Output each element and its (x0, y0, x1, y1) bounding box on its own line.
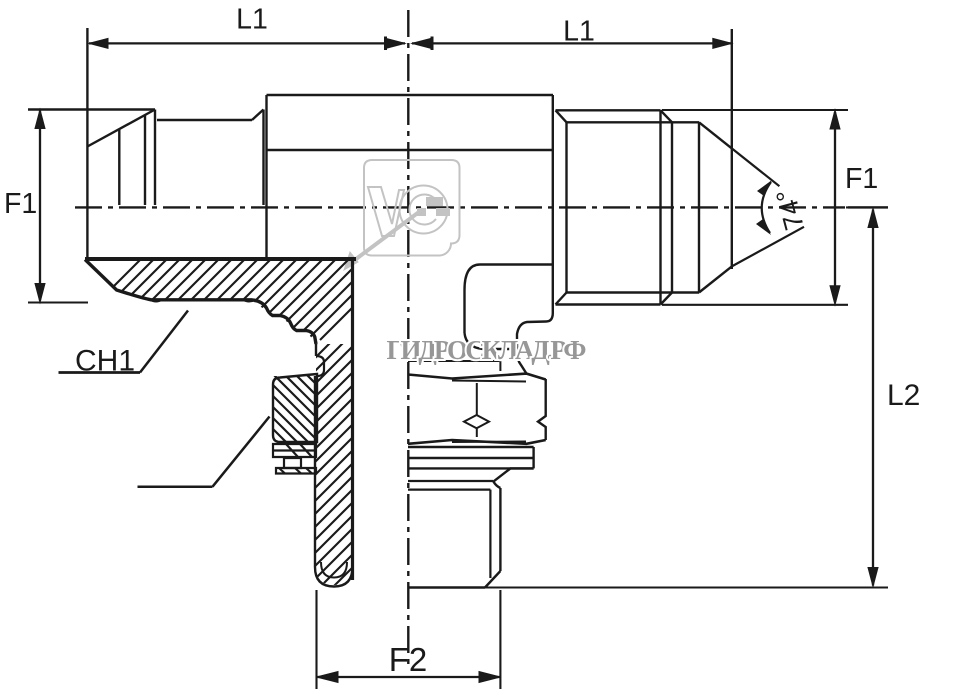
svg-text:L2: L2 (887, 379, 920, 412)
svg-text:L1: L1 (236, 4, 268, 36)
svg-text:F2: F2 (389, 641, 428, 678)
svg-text:F1: F1 (4, 188, 37, 220)
svg-text:ГИДРОСКЛАД.РФ: ГИДРОСКЛАД.РФ (387, 335, 588, 365)
svg-text:F1: F1 (845, 163, 878, 195)
svg-text:L1: L1 (563, 16, 595, 48)
